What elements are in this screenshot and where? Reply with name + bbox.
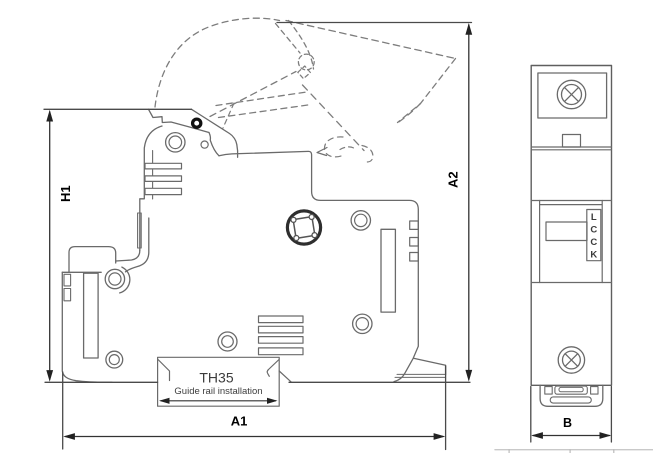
svg-text:C: C bbox=[590, 225, 597, 236]
svg-text:C: C bbox=[590, 237, 597, 248]
svg-text:K: K bbox=[590, 250, 597, 261]
svg-text:L: L bbox=[591, 212, 597, 223]
svg-text:Guide rail installation: Guide rail installation bbox=[174, 386, 262, 397]
svg-text:H1: H1 bbox=[58, 185, 73, 202]
svg-text:TH35: TH35 bbox=[199, 370, 233, 386]
svg-text:A1: A1 bbox=[231, 414, 248, 429]
svg-text:A2: A2 bbox=[446, 171, 461, 188]
svg-text:B: B bbox=[563, 416, 572, 430]
